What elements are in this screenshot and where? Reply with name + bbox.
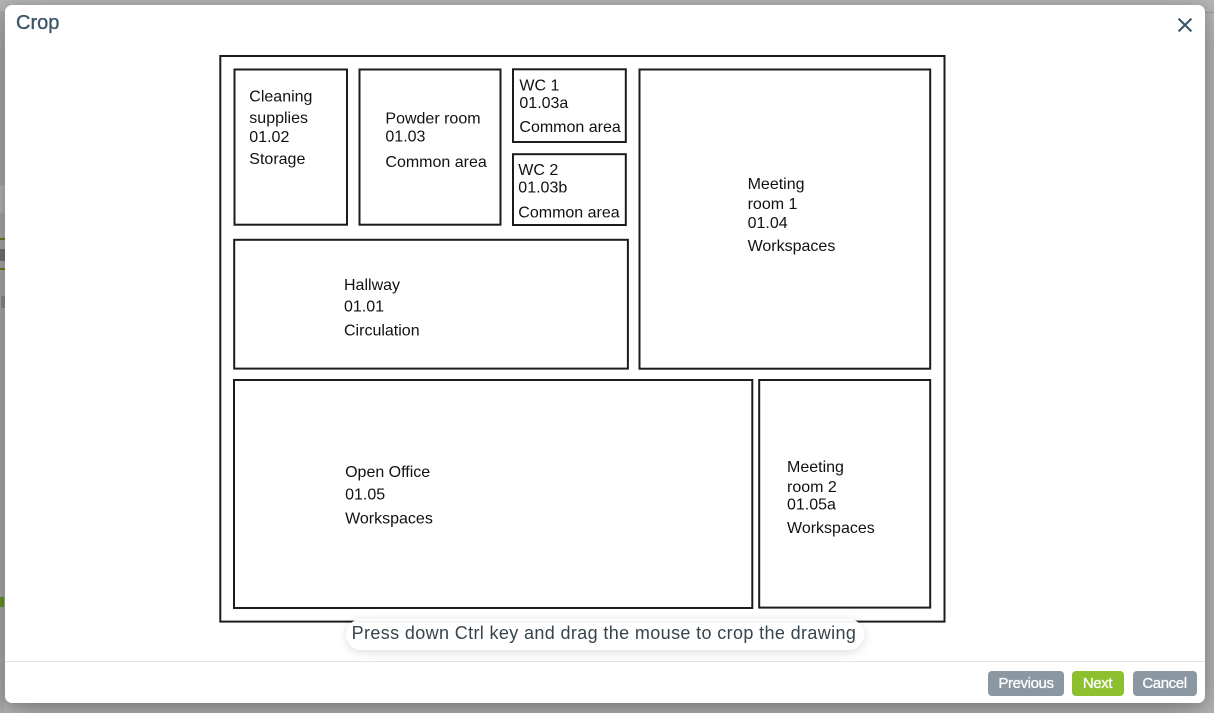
svg-text:Workspaces: Workspaces [787,520,875,537]
svg-text:room 1: room 1 [748,196,798,213]
svg-text:Storage: Storage [249,151,305,168]
svg-text:Hallway: Hallway [344,277,400,294]
svg-text:01.03b: 01.03b [518,179,567,196]
svg-text:01.02: 01.02 [249,129,289,146]
svg-text:Meeting: Meeting [748,176,805,193]
svg-text:Meeting: Meeting [787,459,844,476]
svg-text:Workspaces: Workspaces [748,238,836,255]
svg-text:01.03a: 01.03a [519,95,568,112]
svg-text:Circulation: Circulation [344,323,420,340]
svg-text:Open Office: Open Office [345,464,430,481]
svg-text:Workspaces: Workspaces [345,511,433,528]
svg-text:WC 2: WC 2 [518,162,558,179]
svg-text:01.01: 01.01 [344,299,384,316]
svg-text:01.03: 01.03 [385,129,425,146]
svg-text:WC 1: WC 1 [519,77,559,94]
svg-text:Common area: Common area [385,154,486,171]
svg-text:Common area: Common area [519,119,620,136]
svg-text:Cleaning: Cleaning [249,88,312,105]
svg-text:01.05a: 01.05a [787,497,836,514]
svg-text:01.05: 01.05 [345,486,385,503]
svg-text:room 2: room 2 [787,479,837,496]
svg-text:Common area: Common area [518,204,619,221]
svg-text:Powder room: Powder room [385,111,480,128]
svg-text:01.04: 01.04 [748,215,788,232]
svg-text:supplies: supplies [249,110,308,127]
